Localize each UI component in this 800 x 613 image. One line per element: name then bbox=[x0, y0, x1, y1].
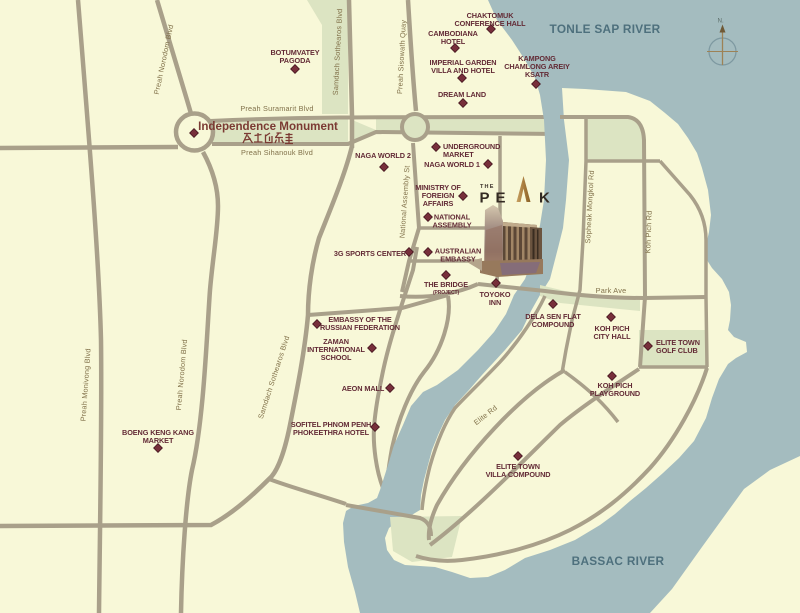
svg-text:DREAM LAND: DREAM LAND bbox=[438, 90, 486, 99]
svg-text:3G SPORTS CENTER: 3G SPORTS CENTER bbox=[334, 249, 407, 258]
svg-text:Preah Suramarit Blvd: Preah Suramarit Blvd bbox=[240, 104, 313, 113]
svg-text:EMBASSY OF THERUSSIAN FEDERATI: EMBASSY OF THERUSSIAN FEDERATION bbox=[320, 315, 400, 332]
svg-text:AEON MALL: AEON MALL bbox=[342, 384, 385, 393]
svg-text:N.: N. bbox=[718, 18, 724, 25]
svg-text:BASSAC RIVER: BASSAC RIVER bbox=[572, 554, 665, 568]
svg-text:NAGA WORLD 2: NAGA WORLD 2 bbox=[355, 151, 411, 160]
svg-text:Independence Monument: Independence Monument bbox=[198, 120, 338, 133]
svg-text:K: K bbox=[539, 190, 550, 207]
svg-text:SOFITEL PHNOM PENHPHOKEETHRA H: SOFITEL PHNOM PENHPHOKEETHRA HOTEL bbox=[291, 420, 371, 437]
svg-text:Koh Pich Rd: Koh Pich Rd bbox=[643, 210, 653, 253]
svg-text:ELITE TOWNGOLF CLUB: ELITE TOWNGOLF CLUB bbox=[656, 338, 700, 355]
svg-text:NAGA WORLD 1: NAGA WORLD 1 bbox=[424, 160, 480, 169]
svg-text:Park Ave: Park Ave bbox=[596, 286, 627, 295]
svg-text:NATIONALASSEMBLY: NATIONALASSEMBLY bbox=[432, 213, 471, 230]
svg-text:DELA SEN FLATCOMPOUND: DELA SEN FLATCOMPOUND bbox=[525, 312, 581, 329]
svg-text:PE: PE bbox=[480, 190, 512, 207]
svg-text:IMPERIAL GARDENVILLA AND HOTEL: IMPERIAL GARDENVILLA AND HOTEL bbox=[430, 58, 497, 75]
svg-text:KOH PICHCITY HALL: KOH PICHCITY HALL bbox=[593, 324, 631, 341]
svg-text:AUSTRALIANEMBASSY: AUSTRALIANEMBASSY bbox=[435, 247, 481, 264]
svg-text:TONLE SAP RIVER: TONLE SAP RIVER bbox=[550, 22, 661, 36]
svg-text:Preah Sihanouk Blvd: Preah Sihanouk Blvd bbox=[241, 148, 313, 157]
